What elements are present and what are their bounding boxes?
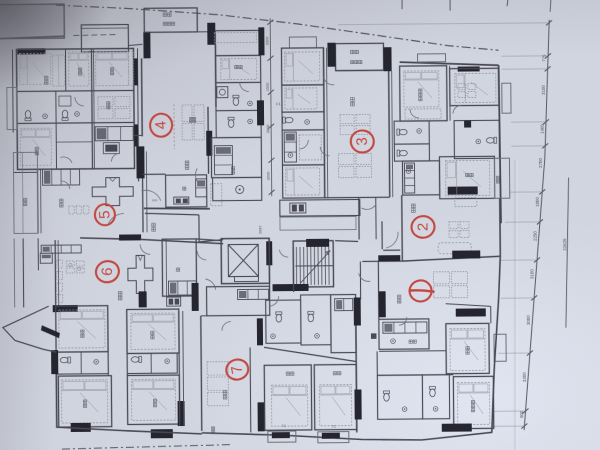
svg-text:1400: 1400 bbox=[539, 124, 544, 134]
svg-text:5: 5 bbox=[96, 210, 113, 219]
svg-text:3100: 3100 bbox=[530, 269, 535, 279]
svg-text:TC: TC bbox=[282, 424, 287, 428]
svg-text:1800: 1800 bbox=[535, 197, 540, 207]
svg-text:6: 6 bbox=[99, 267, 117, 277]
svg-text:3: 3 bbox=[354, 137, 371, 146]
svg-text:TC: TC bbox=[332, 425, 337, 429]
svg-text:1M1: 1M1 bbox=[152, 198, 158, 202]
svg-text:22625: 22625 bbox=[562, 238, 567, 251]
svg-text:3300: 3300 bbox=[522, 372, 527, 382]
svg-text:3100: 3100 bbox=[541, 85, 546, 95]
svg-text:C1: C1 bbox=[276, 102, 281, 106]
svg-text:2: 2 bbox=[414, 223, 431, 231]
svg-text:2250: 2250 bbox=[532, 231, 537, 241]
svg-text:3300: 3300 bbox=[264, 36, 269, 46]
svg-text:4: 4 bbox=[152, 120, 170, 130]
svg-text:2700: 2700 bbox=[538, 158, 543, 168]
svg-text:3000: 3000 bbox=[526, 315, 531, 325]
svg-text:2800: 2800 bbox=[265, 124, 270, 134]
svg-text:775: 775 bbox=[542, 54, 547, 62]
svg-text:3000: 3000 bbox=[266, 171, 271, 181]
svg-text:1800: 1800 bbox=[258, 225, 262, 233]
svg-text:1500: 1500 bbox=[265, 82, 270, 92]
